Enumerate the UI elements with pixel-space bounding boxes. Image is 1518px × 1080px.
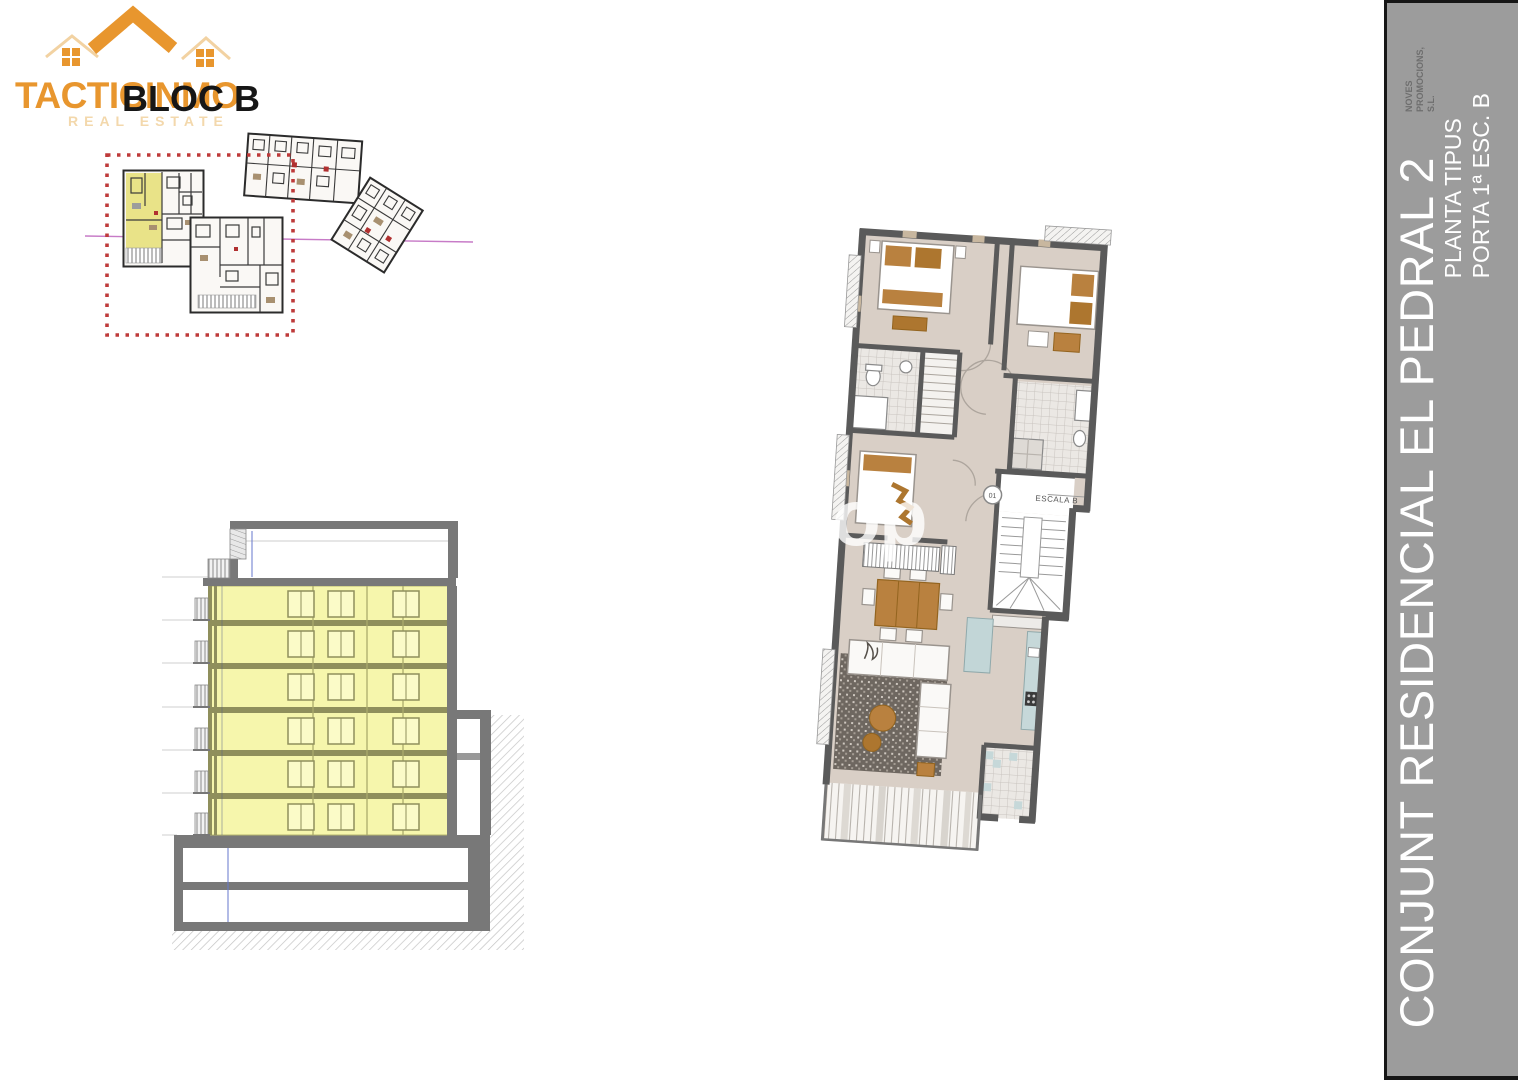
developer-name: NOVESPROMOCIONS,S.L.	[1404, 47, 1437, 112]
main-building-body	[193, 578, 457, 836]
door-number: 01	[988, 493, 996, 501]
side-table	[862, 733, 881, 752]
mini-house-right-icon	[182, 38, 230, 67]
watermark: op	[832, 478, 926, 558]
wardrobe-side	[940, 546, 956, 575]
ground-hatch-bottom	[172, 930, 524, 950]
ground-hatch-right	[488, 715, 524, 950]
roof-icon	[92, 14, 173, 49]
developer-line2: PROMOCIONS,	[1415, 47, 1425, 112]
stove	[1025, 691, 1038, 706]
stool	[917, 763, 935, 777]
title-block-sidebar: CONJUNT RESIDENCIAL EL PEDRAL 2 PLANTA T…	[1384, 0, 1518, 1080]
annex-building	[455, 710, 491, 835]
building-b	[244, 134, 362, 204]
building-section	[160, 497, 580, 962]
site-key-plan	[85, 112, 485, 347]
plan-type: PLANTA TIPUS	[1440, 118, 1466, 278]
building-a2	[191, 218, 283, 313]
developer-line3: S.L.	[1426, 96, 1436, 113]
unit-label: PORTA 1ª ESC. B	[1468, 93, 1494, 278]
developer-line1: NOVES	[1404, 81, 1414, 113]
penthouse-level	[208, 521, 458, 578]
project-title: CONJUNT RESIDENCIAL EL PEDRAL 2	[1389, 157, 1444, 1028]
kitchen-table	[964, 617, 994, 673]
plan-type-label: PLANTA TIPUSPORTA 1ª ESC. B	[1439, 93, 1495, 278]
page: TACTICINMO BLOC B REAL ESTATE	[0, 0, 1518, 1080]
mini-house-left-icon	[46, 36, 98, 66]
basement-levels	[174, 835, 490, 931]
